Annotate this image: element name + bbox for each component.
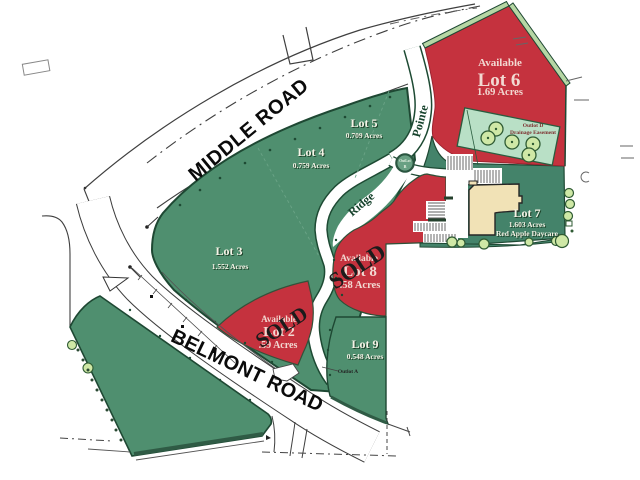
- svg-text:0.709 Acres: 0.709 Acres: [346, 131, 383, 140]
- svg-text:Outlot A: Outlot A: [338, 369, 358, 375]
- svg-text:B: B: [404, 164, 407, 169]
- svg-text:0.548 Acres: 0.548 Acres: [347, 352, 384, 361]
- svg-text:1.552 Acres: 1.552 Acres: [212, 262, 249, 271]
- svg-text:Outlot D: Outlot D: [523, 123, 544, 129]
- svg-text:1.603 Acres: 1.603 Acres: [509, 220, 546, 229]
- svg-text:1.69 Acres: 1.69 Acres: [477, 87, 523, 98]
- svg-text:OutLot: OutLot: [399, 159, 411, 163]
- svg-text:Lot 3: Lot 3: [216, 244, 243, 258]
- svg-text:Available: Available: [478, 57, 522, 69]
- svg-text:Red Apple Daycare: Red Apple Daycare: [496, 229, 559, 238]
- svg-text:Lot 4: Lot 4: [298, 145, 325, 159]
- svg-text:Drainage Easement: Drainage Easement: [510, 130, 556, 136]
- svg-text:Lot 5: Lot 5: [351, 116, 378, 130]
- svg-text:Lot 7: Lot 7: [514, 206, 541, 220]
- svg-text:Lot 9: Lot 9: [352, 337, 379, 351]
- svg-text:0.759 Acres: 0.759 Acres: [293, 161, 330, 170]
